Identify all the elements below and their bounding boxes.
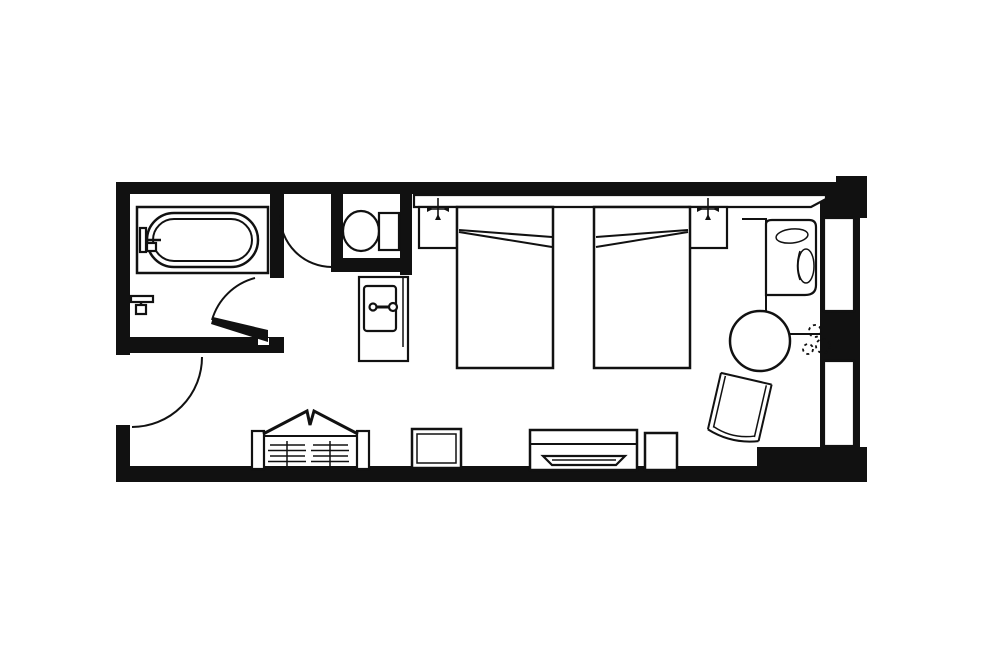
wall-left-upper <box>116 182 130 355</box>
window-upper <box>824 218 854 311</box>
closet-shelves-right <box>311 441 349 470</box>
mini-fridge <box>645 433 677 470</box>
bathroom-door-swing <box>212 278 255 320</box>
open-closet <box>252 411 369 470</box>
floor-plan <box>0 0 1000 667</box>
closet-doors-open <box>263 411 358 434</box>
vanity-area <box>359 277 408 361</box>
wall-wc-left <box>331 193 343 261</box>
closet-post-left <box>252 431 264 469</box>
lounge-corner <box>707 219 830 445</box>
bathroom <box>131 207 268 342</box>
wall-bottom-right-block <box>757 447 867 482</box>
floor-furniture <box>412 429 677 470</box>
round-side-table <box>730 311 790 371</box>
closet-shelves-left <box>268 441 306 470</box>
toilet-door-swing <box>280 215 332 267</box>
entry-door-swing <box>132 357 202 427</box>
headboard <box>414 195 826 207</box>
desk-edge <box>742 219 766 313</box>
floor-plan-page <box>0 0 1000 667</box>
wall-top <box>116 182 838 194</box>
wall-wc-south <box>331 258 412 272</box>
luggage-stool <box>412 429 461 468</box>
shower-valve <box>131 296 153 314</box>
closet-post-right <box>357 431 369 469</box>
window-lower <box>824 361 854 446</box>
wall-wc-bedroom-divider <box>400 193 412 275</box>
wall-bathroom-right <box>270 193 284 278</box>
toilet-bowl <box>343 211 379 251</box>
lounge-chair <box>707 373 772 446</box>
armchair <box>766 220 816 295</box>
toilet-tank <box>379 213 399 250</box>
